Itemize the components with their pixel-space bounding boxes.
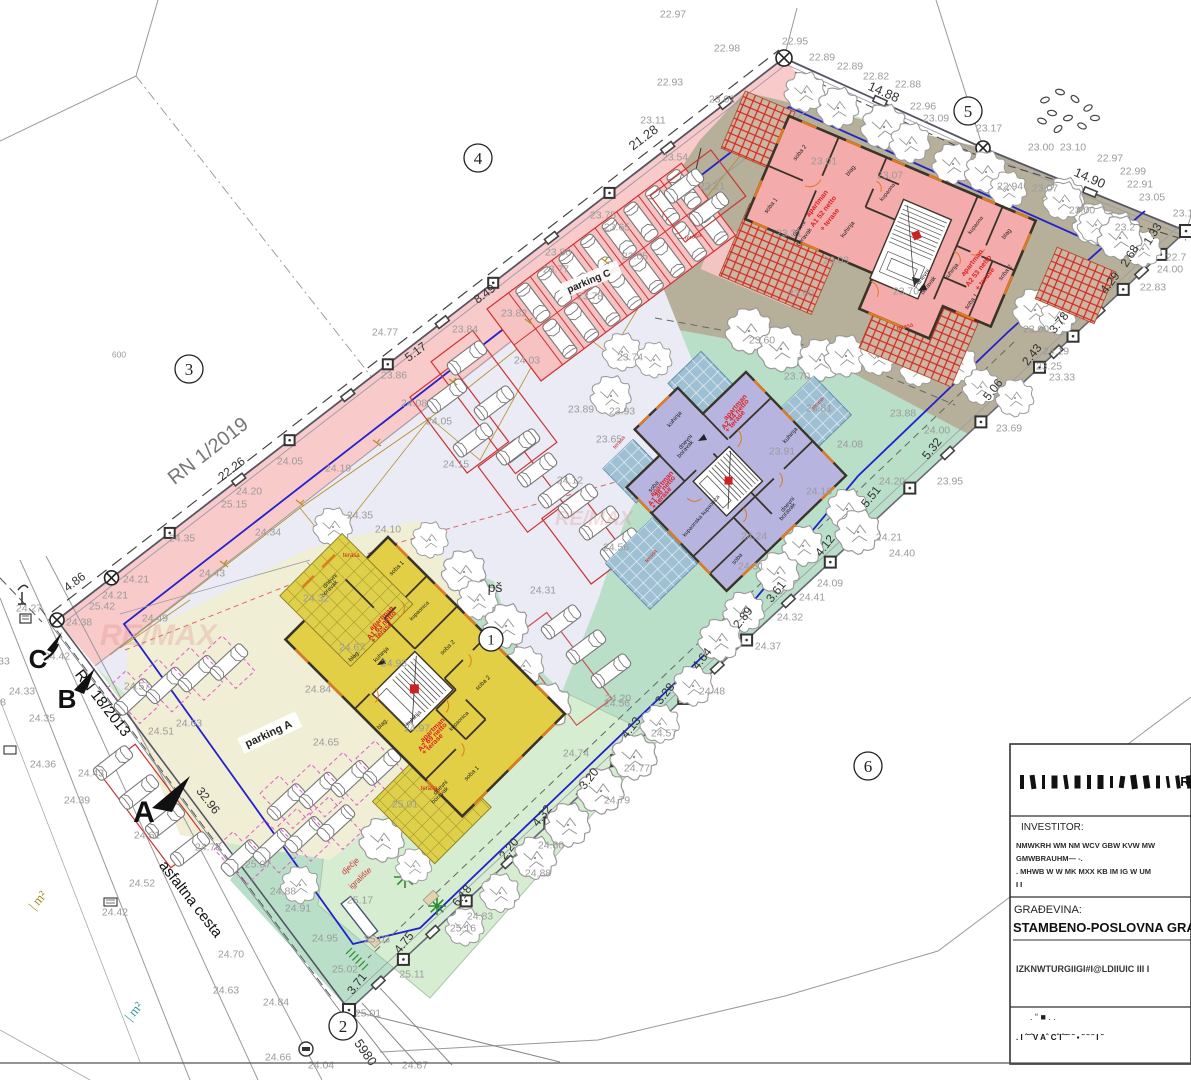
svg-text:22.97: 22.97 bbox=[1097, 153, 1123, 165]
svg-text:A: A bbox=[133, 796, 155, 829]
svg-text:23.17: 23.17 bbox=[976, 123, 1002, 135]
svg-text:24.63: 24.63 bbox=[176, 718, 202, 730]
svg-text:23.09: 23.09 bbox=[923, 113, 949, 125]
svg-text:22.93: 22.93 bbox=[657, 77, 683, 89]
svg-text:23.86: 23.86 bbox=[545, 247, 571, 259]
svg-text:24.21: 24.21 bbox=[123, 574, 149, 586]
svg-text:24.61: 24.61 bbox=[134, 830, 160, 842]
svg-text:23.33: 23.33 bbox=[1049, 372, 1075, 384]
svg-text:23.86: 23.86 bbox=[381, 370, 407, 382]
svg-text:22.94: 22.94 bbox=[997, 181, 1023, 193]
svg-text:24.10: 24.10 bbox=[375, 524, 401, 536]
svg-text:23.60: 23.60 bbox=[788, 288, 814, 300]
svg-text:24.39: 24.39 bbox=[64, 795, 90, 807]
svg-text:24.67: 24.67 bbox=[339, 642, 365, 654]
svg-text:24.91: 24.91 bbox=[285, 903, 311, 915]
svg-text:23.25: 23.25 bbox=[1036, 361, 1062, 373]
svg-text:24.93: 24.93 bbox=[381, 658, 407, 670]
svg-text:23.10: 23.10 bbox=[1060, 142, 1086, 154]
svg-text:24.08: 24.08 bbox=[837, 439, 863, 451]
svg-text:23.74: 23.74 bbox=[617, 352, 643, 364]
svg-text:23.00: 23.00 bbox=[1069, 205, 1095, 217]
svg-text:25.42: 25.42 bbox=[89, 601, 115, 613]
svg-text:25.03: 25.03 bbox=[364, 934, 390, 946]
svg-text:24.83: 24.83 bbox=[467, 911, 493, 923]
svg-text:24.35: 24.35 bbox=[29, 713, 55, 725]
svg-text:23.69: 23.69 bbox=[996, 423, 1022, 435]
svg-text:STAMBENO-POSLOVNA GRAĐ: STAMBENO-POSLOVNA GRAĐ bbox=[1013, 920, 1191, 935]
svg-text:24.32: 24.32 bbox=[777, 612, 803, 624]
svg-text:24.33: 24.33 bbox=[9, 686, 35, 698]
svg-text:24.77: 24.77 bbox=[624, 763, 650, 775]
svg-text:22.99: 22.99 bbox=[1120, 166, 1146, 178]
svg-text:22.89: 22.89 bbox=[809, 52, 835, 64]
svg-text:24.97: 24.97 bbox=[404, 723, 430, 735]
svg-text:23.89: 23.89 bbox=[568, 404, 594, 416]
svg-text:RE/MAX: RE/MAX bbox=[555, 508, 634, 530]
svg-text:22.88: 22.88 bbox=[895, 79, 921, 91]
svg-text:23.93: 23.93 bbox=[609, 406, 635, 418]
svg-text:24.16: 24.16 bbox=[806, 486, 832, 498]
svg-text:24.03: 24.03 bbox=[514, 355, 540, 367]
svg-text:RE/MAX: RE/MAX bbox=[100, 619, 219, 652]
svg-text:24.56: 24.56 bbox=[603, 542, 629, 554]
svg-text:23.07: 23.07 bbox=[877, 170, 903, 182]
svg-text:B: B bbox=[58, 684, 77, 714]
svg-text:22.95: 22.95 bbox=[782, 36, 808, 48]
svg-text:2: 2 bbox=[339, 1017, 348, 1036]
svg-text:23.54: 23.54 bbox=[662, 152, 688, 164]
svg-text:24.05: 24.05 bbox=[426, 416, 452, 428]
svg-text:24.48: 24.48 bbox=[699, 686, 725, 698]
svg-text:24.80: 24.80 bbox=[538, 840, 564, 852]
svg-text:I I: I I bbox=[1016, 880, 1022, 889]
svg-text:24.31: 24.31 bbox=[738, 561, 764, 573]
svg-text:24.88: 24.88 bbox=[270, 886, 296, 898]
svg-text:25.15: 25.15 bbox=[221, 499, 247, 511]
svg-text:24.57: 24.57 bbox=[124, 681, 150, 693]
svg-text:23.95: 23.95 bbox=[937, 476, 963, 488]
svg-text:. MHWB W W MK MXX KB IM IG W U: . MHWB W W MK MXX KB IM IG W UM bbox=[1016, 867, 1151, 876]
svg-text:24.57: 24.57 bbox=[651, 728, 677, 740]
svg-text:GMWBRAUHM— -.: GMWBRAUHM— -. bbox=[1016, 854, 1083, 863]
svg-text:23.65: 23.65 bbox=[622, 251, 648, 263]
svg-text:3: 3 bbox=[185, 360, 194, 379]
svg-text:24.35: 24.35 bbox=[169, 533, 195, 545]
svg-text:24.43: 24.43 bbox=[199, 568, 225, 580]
svg-text:24.38: 24.38 bbox=[66, 617, 92, 629]
svg-text:24.63: 24.63 bbox=[213, 985, 239, 997]
svg-text:23.31: 23.31 bbox=[776, 228, 802, 240]
svg-text:24.95: 24.95 bbox=[312, 933, 338, 945]
svg-text:. I ˆ˜ˆV Aˆ CˆIˆ˜˜ ˜ ▪ ˜ ˜ ˜ I: . I ˆ˜ˆV Aˆ CˆIˆ˜˜ ˜ ▪ ˜ ˜ ˜ I ˜ bbox=[1016, 1033, 1104, 1042]
svg-text:33: 33 bbox=[0, 656, 10, 668]
svg-text:24.20: 24.20 bbox=[879, 476, 905, 488]
svg-text:24.21: 24.21 bbox=[876, 532, 902, 544]
svg-text:24.42: 24.42 bbox=[102, 907, 128, 919]
svg-text:24.78: 24.78 bbox=[195, 842, 221, 854]
svg-text:22.7: 22.7 bbox=[1166, 252, 1187, 264]
svg-text:22.91: 22.91 bbox=[1127, 179, 1153, 191]
svg-text:23.07: 23.07 bbox=[1032, 183, 1058, 195]
svg-text:23.03: 23.03 bbox=[823, 255, 849, 267]
svg-text:24.52: 24.52 bbox=[129, 878, 155, 890]
svg-text:23.88: 23.88 bbox=[890, 408, 916, 420]
svg-text:25.07: 25.07 bbox=[245, 859, 271, 871]
svg-text:23.81: 23.81 bbox=[806, 403, 832, 415]
svg-text:25.01: 25.01 bbox=[355, 1008, 381, 1020]
svg-text:terasa: terasa bbox=[421, 786, 438, 792]
svg-text:22.89: 22.89 bbox=[837, 61, 863, 73]
svg-text:24.84: 24.84 bbox=[305, 684, 331, 696]
svg-text:23.60: 23.60 bbox=[749, 335, 775, 347]
svg-text:22.97: 22.97 bbox=[660, 9, 686, 21]
svg-text:IZKNWTURGIIGI#I@LDIIUIC III I: IZKNWTURGIIGI#I@LDIIUIC III I bbox=[1016, 964, 1149, 974]
svg-text:24.19: 24.19 bbox=[325, 463, 351, 475]
svg-text:24.74: 24.74 bbox=[563, 748, 589, 760]
svg-text:23.65: 23.65 bbox=[596, 434, 622, 446]
svg-text:24.70: 24.70 bbox=[218, 949, 244, 961]
svg-text:23.82: 23.82 bbox=[501, 308, 527, 320]
svg-text:24.12: 24.12 bbox=[557, 475, 583, 487]
svg-text:24.24: 24.24 bbox=[741, 531, 767, 543]
svg-text:24.20: 24.20 bbox=[236, 486, 262, 498]
svg-text:23.00: 23.00 bbox=[1028, 142, 1054, 154]
svg-text:NMWKRH WM NM WCV GBW KVW MW: NMWKRH WM NM WCV GBW KVW MW bbox=[1016, 841, 1156, 850]
svg-text:25.11: 25.11 bbox=[399, 969, 425, 981]
svg-text:25.02: 25.02 bbox=[332, 964, 358, 976]
svg-text:8: 8 bbox=[0, 697, 6, 709]
svg-text:24.34: 24.34 bbox=[255, 527, 281, 539]
svg-text:24.37: 24.37 bbox=[755, 641, 781, 653]
svg-text:23.84: 23.84 bbox=[452, 324, 478, 336]
svg-text:24.35: 24.35 bbox=[347, 510, 373, 522]
svg-text:6: 6 bbox=[864, 757, 873, 776]
svg-text:24.88: 24.88 bbox=[525, 868, 551, 880]
svg-text:pš: pš bbox=[488, 579, 503, 595]
svg-text:24.40: 24.40 bbox=[889, 548, 915, 560]
svg-text:25.01: 25.01 bbox=[392, 799, 418, 811]
svg-text:24.09: 24.09 bbox=[817, 578, 843, 590]
svg-text:4: 4 bbox=[474, 149, 483, 168]
svg-text:24.87: 24.87 bbox=[402, 1060, 428, 1072]
svg-text:24.43: 24.43 bbox=[78, 768, 104, 780]
svg-text:24.08: 24.08 bbox=[401, 398, 427, 410]
svg-text:23.78: 23.78 bbox=[577, 291, 603, 303]
svg-text:24.00: 24.00 bbox=[1157, 264, 1183, 276]
svg-text:24.65: 24.65 bbox=[313, 737, 339, 749]
svg-text:23.70: 23.70 bbox=[893, 286, 919, 298]
svg-text:25.16: 25.16 bbox=[450, 923, 476, 935]
svg-text:23.2: 23.2 bbox=[1115, 222, 1136, 234]
svg-text:R: R bbox=[1180, 774, 1190, 789]
svg-text:23.77: 23.77 bbox=[543, 264, 569, 276]
svg-text:23.05: 23.05 bbox=[1139, 192, 1165, 204]
svg-text:22.96: 22.96 bbox=[910, 101, 936, 113]
svg-text:600: 600 bbox=[112, 350, 126, 360]
svg-text:23.70: 23.70 bbox=[784, 371, 810, 383]
svg-text:25.17: 25.17 bbox=[347, 895, 373, 907]
svg-text:1: 1 bbox=[487, 632, 495, 648]
svg-text:24.41: 24.41 bbox=[799, 592, 825, 604]
svg-text:23.1: 23.1 bbox=[1173, 208, 1191, 220]
svg-text:5: 5 bbox=[964, 102, 973, 121]
svg-text:23.91: 23.91 bbox=[769, 446, 795, 458]
svg-text:24.31: 24.31 bbox=[530, 585, 556, 597]
svg-text:24.84: 24.84 bbox=[263, 997, 289, 1009]
svg-text:24.36: 24.36 bbox=[30, 759, 56, 771]
svg-text:23.75: 23.75 bbox=[590, 210, 616, 222]
svg-text:23.65: 23.65 bbox=[604, 222, 630, 234]
svg-text:24.19: 24.19 bbox=[1043, 346, 1069, 358]
svg-text:INVESTITOR:: INVESTITOR: bbox=[1021, 822, 1084, 833]
svg-text:24.15: 24.15 bbox=[443, 459, 469, 471]
svg-text:terasa: terasa bbox=[343, 553, 360, 559]
svg-text:23.02: 23.02 bbox=[709, 94, 735, 106]
svg-text:24.79: 24.79 bbox=[604, 795, 630, 807]
svg-text:23.01: 23.01 bbox=[811, 156, 837, 168]
svg-text:24.00: 24.00 bbox=[924, 425, 950, 437]
svg-text:24.32: 24.32 bbox=[303, 593, 329, 605]
svg-text:24.56: 24.56 bbox=[604, 698, 630, 710]
svg-text:24.05: 24.05 bbox=[277, 456, 303, 468]
svg-text:23.00: 23.00 bbox=[1023, 324, 1049, 336]
svg-text:. “ ■ . .: . “ ■ . . bbox=[1030, 1012, 1056, 1022]
svg-text:22.83: 22.83 bbox=[1140, 282, 1166, 294]
svg-text:24.66: 24.66 bbox=[265, 1052, 291, 1064]
svg-text:23.21: 23.21 bbox=[699, 181, 725, 193]
svg-text:24.77: 24.77 bbox=[372, 327, 398, 339]
svg-text:24.04: 24.04 bbox=[308, 1060, 334, 1072]
svg-text:24.51: 24.51 bbox=[148, 726, 174, 738]
svg-text:22.98: 22.98 bbox=[714, 43, 740, 55]
svg-text:GRAĐEVINA:: GRAĐEVINA: bbox=[1014, 904, 1082, 916]
